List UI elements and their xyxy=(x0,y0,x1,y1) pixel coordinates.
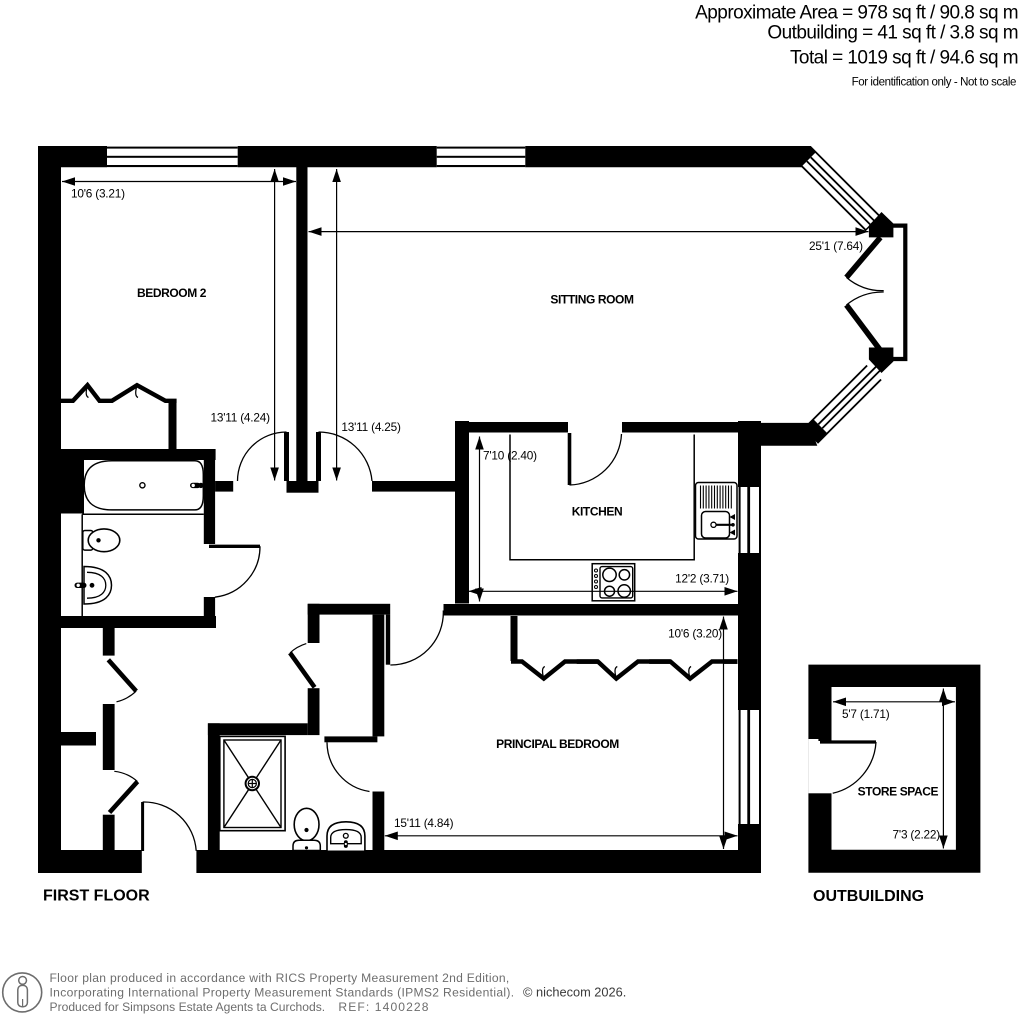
svg-text:REF: 1400228: REF: 1400228 xyxy=(338,1000,429,1014)
svg-text:FIRST FLOOR: FIRST FLOOR xyxy=(43,888,150,905)
svg-text:Total = 1019 sq ft / 94.6 sq m: Total = 1019 sq ft / 94.6 sq m xyxy=(790,48,1018,69)
svg-text:25'1 (7.64): 25'1 (7.64) xyxy=(809,239,863,253)
svg-text:Produced for Simpsons Estate A: Produced for Simpsons Estate Agents ta C… xyxy=(50,1000,326,1014)
svg-text:Approximate Area = 978 sq ft /: Approximate Area = 978 sq ft / 90.8 sq m xyxy=(695,3,1018,24)
svg-text:KITCHEN: KITCHEN xyxy=(572,505,623,519)
svg-text:15'11 (4.84): 15'11 (4.84) xyxy=(394,816,454,830)
svg-text:PRINCIPAL BEDROOM: PRINCIPAL BEDROOM xyxy=(496,737,619,751)
svg-text:13'11 (4.25): 13'11 (4.25) xyxy=(341,420,401,434)
svg-text:BEDROOM 2: BEDROOM 2 xyxy=(137,286,207,300)
svg-text:Incorporating International Pr: Incorporating International Property Mea… xyxy=(50,986,515,1000)
svg-text:10'6 (3.21): 10'6 (3.21) xyxy=(71,187,125,201)
svg-text:13'11 (4.24): 13'11 (4.24) xyxy=(211,411,271,425)
svg-text:STORE SPACE: STORE SPACE xyxy=(858,785,939,799)
svg-text:Floor plan produced in accorda: Floor plan produced in accordance with R… xyxy=(50,971,510,985)
svg-text:7'3 (2.22): 7'3 (2.22) xyxy=(893,828,941,842)
svg-text:5'7 (1.71): 5'7 (1.71) xyxy=(842,707,890,721)
svg-text:© nichecom 2026.: © nichecom 2026. xyxy=(523,985,626,1000)
svg-text:SITTING ROOM: SITTING ROOM xyxy=(550,293,634,307)
svg-text:12'2 (3.71): 12'2 (3.71) xyxy=(675,572,729,586)
svg-text:OUTBUILDING: OUTBUILDING xyxy=(813,888,924,905)
svg-text:For identification only - Not: For identification only - Not to scale xyxy=(852,77,1016,89)
svg-text:Outbuilding = 41 sq ft / 3.8 s: Outbuilding = 41 sq ft / 3.8 sq m xyxy=(767,23,1018,44)
svg-text:7'10 (2.40): 7'10 (2.40) xyxy=(483,449,537,463)
svg-text:10'6 (3.20): 10'6 (3.20) xyxy=(668,627,722,641)
